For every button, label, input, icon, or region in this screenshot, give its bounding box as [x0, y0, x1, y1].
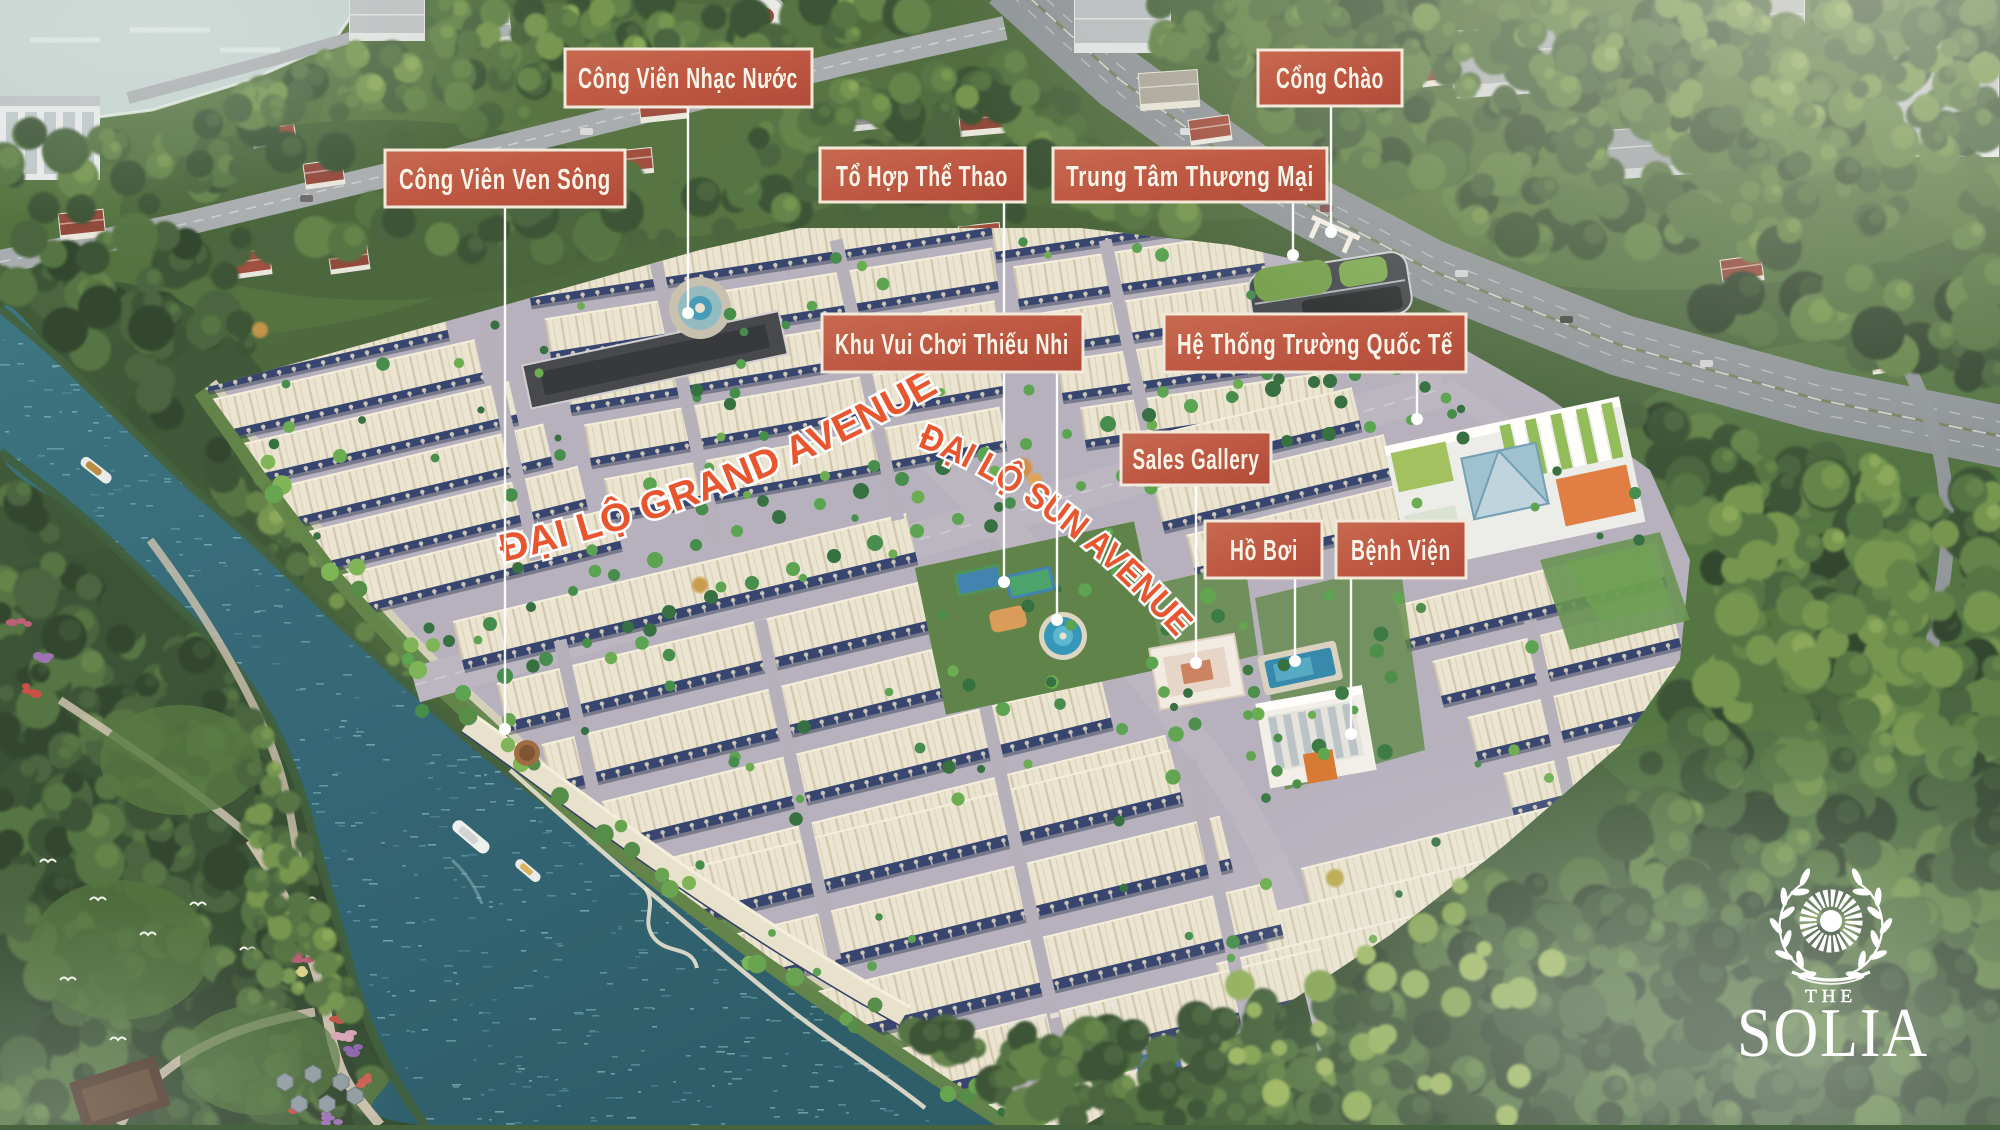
- svg-text:Công Viên Ven Sông: Công Viên Ven Sông: [399, 164, 611, 196]
- svg-text:Hồ Bơi: Hồ Bơi: [1230, 535, 1298, 567]
- svg-text:SOLIA: SOLIA: [1737, 995, 1929, 1072]
- svg-text:Hệ Thống Trường Quốc Tế: Hệ Thống Trường Quốc Tế: [1177, 329, 1453, 361]
- svg-text:Tổ Hợp Thể Thao: Tổ Hợp Thể Thao: [836, 161, 1008, 193]
- svg-text:Sales Gallery: Sales Gallery: [1133, 444, 1260, 476]
- svg-text:Công Viên Nhạc Nước: Công Viên Nhạc Nước: [578, 63, 798, 95]
- svg-text:Trung Tâm Thương Mại: Trung Tâm Thương Mại: [1066, 161, 1314, 193]
- svg-text:Cổng Chào: Cổng Chào: [1276, 63, 1384, 95]
- svg-text:Khu Vui Chơi Thiếu Nhi: Khu Vui Chơi Thiếu Nhi: [835, 329, 1069, 361]
- svg-text:Bệnh Viện: Bệnh Viện: [1351, 535, 1451, 567]
